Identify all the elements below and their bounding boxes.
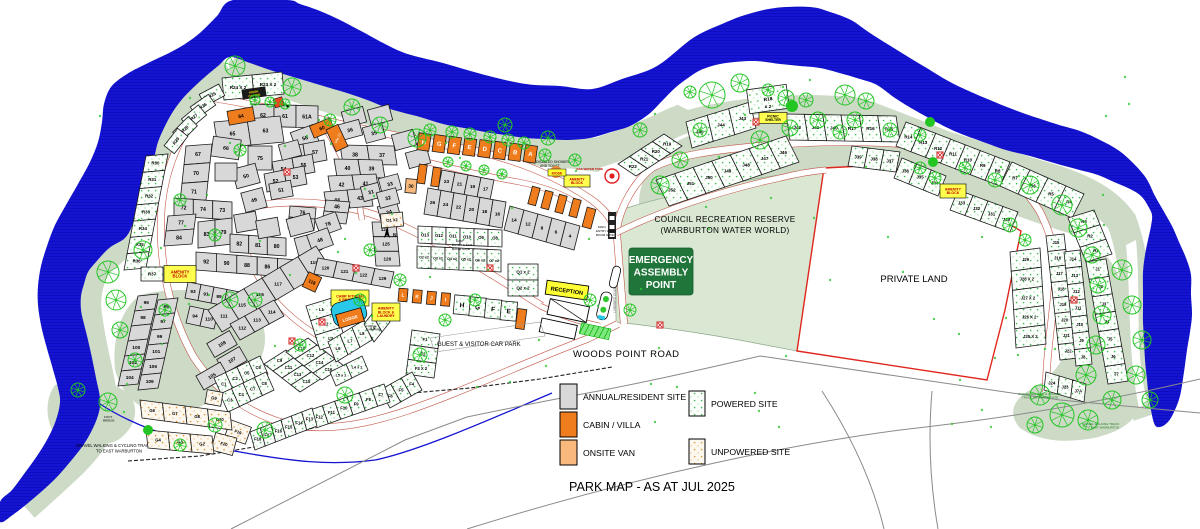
svg-text:F13: F13: [306, 417, 314, 422]
svg-text:120: 120: [322, 265, 330, 270]
svg-text:C3: C3: [227, 398, 233, 403]
svg-text:R23 X 2: R23 X 2: [260, 82, 277, 87]
svg-text:C14: C14: [316, 360, 324, 365]
svg-text:113: 113: [253, 318, 261, 324]
svg-text:19: 19: [470, 184, 476, 190]
svg-text:J1: J1: [1095, 267, 1100, 272]
svg-text:L4 x 2: L4 x 2: [352, 365, 363, 369]
svg-text:53: 53: [293, 175, 299, 181]
svg-text:129: 129: [379, 276, 387, 281]
svg-text:O10: O10: [463, 234, 472, 239]
svg-text:23: 23: [444, 179, 450, 185]
svg-text:R32: R32: [145, 193, 154, 198]
svg-text:122: 122: [360, 272, 368, 277]
svg-text:UNPOWERED SITE: UNPOWERED SITE: [711, 447, 790, 457]
svg-text:J26 X 2: J26 X 2: [1022, 315, 1037, 320]
svg-text:BOOM GATE: BOOM GATE: [596, 233, 614, 237]
svg-text:F16: F16: [275, 429, 283, 434]
svg-text:14: 14: [511, 218, 517, 224]
svg-text:92: 92: [203, 260, 209, 266]
svg-text:F4: F4: [409, 382, 415, 387]
svg-text:J35: J35: [916, 175, 924, 180]
svg-text:ASSEMBLY: ASSEMBLY: [634, 268, 689, 279]
svg-text:Q1 x 2: Q1 x 2: [516, 270, 530, 275]
svg-text:C12: C12: [307, 353, 315, 358]
svg-text:111: 111: [220, 313, 228, 319]
svg-text:R36: R36: [133, 258, 142, 263]
svg-text:71: 71: [191, 190, 197, 196]
svg-text:J37: J37: [886, 159, 894, 164]
svg-text:20: 20: [469, 207, 475, 213]
svg-text:80: 80: [274, 244, 280, 250]
svg-text:C8: C8: [262, 381, 268, 386]
svg-text:89: 89: [216, 294, 222, 300]
svg-text:G6: G6: [149, 408, 155, 413]
svg-text:TO EAST WARBURTON: TO EAST WARBURTON: [1086, 426, 1119, 430]
svg-text:R14: R14: [904, 134, 913, 139]
svg-text:L: L: [401, 293, 405, 299]
svg-text:6: 6: [555, 230, 558, 236]
svg-text:22: 22: [456, 205, 462, 211]
svg-text:O13: O13: [421, 232, 430, 237]
svg-text:12: 12: [525, 222, 531, 228]
svg-text:J47: J47: [761, 156, 769, 161]
svg-text:74: 74: [200, 207, 206, 213]
svg-text:R2: R2: [1087, 234, 1093, 239]
svg-text:N: N: [393, 233, 397, 239]
svg-text:J52: J52: [668, 188, 676, 193]
svg-text:TRACK ENTRANCE GATE: TRACK ENTRANCE GATE: [1022, 396, 1058, 400]
svg-text:77: 77: [178, 220, 184, 226]
svg-text:C15: C15: [303, 379, 311, 384]
svg-text:J48: J48: [742, 162, 750, 167]
svg-text:J14: J14: [1069, 257, 1077, 262]
svg-text:Q2 x 2: Q2 x 2: [516, 286, 530, 291]
svg-text:R16: R16: [866, 126, 875, 131]
svg-text:BRIDGE: BRIDGE: [103, 419, 115, 423]
svg-text:J19: J19: [1059, 302, 1067, 307]
svg-text:J25 X 2: J25 X 2: [1023, 334, 1038, 339]
svg-text:70: 70: [193, 171, 199, 177]
svg-text:J15: J15: [1052, 240, 1060, 245]
svg-text:WOODS POINT ROAD: WOODS POINT ROAD: [573, 349, 680, 360]
svg-text:R5: R5: [1048, 192, 1054, 197]
svg-text:R18: R18: [763, 96, 773, 103]
svg-text:40: 40: [345, 166, 351, 172]
svg-text:LAUNDRY: LAUNDRY: [377, 314, 395, 318]
svg-text:63: 63: [263, 128, 269, 134]
svg-text:L5 x 2: L5 x 2: [336, 373, 347, 377]
svg-text:100: 100: [132, 345, 140, 351]
svg-text:C7: C7: [250, 387, 256, 392]
svg-text:C11: C11: [285, 365, 293, 370]
svg-text:J20: J20: [1061, 318, 1069, 323]
svg-text:KIOSK: KIOSK: [552, 171, 563, 175]
svg-text:CAR PARK: CAR PARK: [366, 328, 381, 332]
svg-text:O5 x2: O5 x2: [461, 258, 471, 262]
svg-text:J6: J6: [1111, 354, 1116, 359]
svg-text:C6: C6: [256, 365, 262, 370]
svg-text:8: 8: [541, 226, 544, 232]
svg-text:J33: J33: [958, 200, 966, 205]
svg-text:J24: J24: [1048, 381, 1056, 386]
svg-text:L6: L6: [336, 346, 342, 351]
svg-text:GRAVEL WALKING & CYCLING TRACK: GRAVEL WALKING & CYCLING TRACK: [76, 443, 152, 448]
svg-text:J16: J16: [1054, 256, 1062, 261]
svg-text:O7 x2: O7 x2: [489, 259, 499, 263]
svg-text:O6 x2: O6 x2: [475, 258, 485, 262]
svg-text:121: 121: [341, 269, 349, 274]
svg-text:R31: R31: [148, 177, 157, 182]
svg-text:J9: J9: [1079, 338, 1084, 343]
svg-text:J17: J17: [1056, 271, 1064, 276]
svg-text:C9: C9: [277, 358, 283, 363]
svg-text:46: 46: [334, 204, 340, 210]
svg-text:37: 37: [379, 153, 385, 159]
svg-text:J49: J49: [724, 169, 732, 174]
svg-text:96: 96: [144, 300, 150, 306]
svg-text:F15: F15: [285, 425, 293, 430]
svg-text:43: 43: [357, 196, 363, 202]
svg-text:39: 39: [369, 167, 375, 173]
svg-text:R11: R11: [949, 152, 957, 157]
svg-text:110: 110: [205, 317, 213, 323]
svg-text:J32: J32: [973, 206, 981, 211]
svg-text:67: 67: [195, 152, 201, 158]
svg-text:16: 16: [495, 212, 501, 218]
svg-text:J28 X 2: J28 X 2: [1020, 276, 1035, 281]
svg-text:GUEST & VISITOR CAR PARK: GUEST & VISITOR CAR PARK: [437, 342, 521, 348]
svg-text:PRIVATE LAND: PRIVATE LAND: [880, 274, 947, 285]
svg-text:COUNCIL RECREATION RESERVE: COUNCIL RECREATION RESERVE: [655, 215, 796, 224]
svg-text:H: H: [459, 302, 465, 309]
svg-text:C13: C13: [294, 372, 302, 377]
svg-text:J23: J23: [1062, 385, 1070, 390]
svg-text:21: 21: [457, 181, 463, 187]
svg-text:BLOCK: BLOCK: [173, 274, 188, 279]
svg-text:POWERED SITE: POWERED SITE: [711, 399, 778, 409]
svg-text:CABIN / VILLA: CABIN / VILLA: [583, 420, 641, 430]
svg-text:26: 26: [430, 200, 436, 206]
svg-text:x 2: x 2: [765, 104, 772, 110]
svg-text:G10: G10: [216, 417, 225, 422]
svg-text:126: 126: [383, 256, 391, 261]
svg-text:65: 65: [230, 131, 236, 137]
svg-text:J43: J43: [738, 116, 746, 121]
svg-text:SHELTER: SHELTER: [765, 118, 781, 122]
svg-text:J51: J51: [687, 181, 695, 186]
svg-text:O11: O11: [449, 234, 457, 239]
svg-text:J18: J18: [1058, 287, 1066, 292]
svg-text:J22: J22: [1065, 349, 1073, 354]
svg-text:J39: J39: [854, 155, 862, 160]
svg-text:F3 X 2: F3 X 2: [415, 366, 428, 371]
svg-text:51: 51: [278, 187, 285, 194]
svg-text:R34: R34: [139, 226, 148, 231]
svg-text:61: 61: [282, 114, 288, 120]
svg-text:J29: J29: [1022, 257, 1030, 262]
svg-text:117: 117: [274, 281, 282, 287]
svg-text:C5: C5: [244, 371, 250, 376]
svg-text:R30: R30: [151, 161, 160, 166]
svg-text:G4: G4: [155, 438, 161, 443]
svg-text:J7: J7: [1114, 371, 1119, 376]
svg-text:R9: R9: [980, 163, 986, 168]
svg-text:G7: G7: [172, 411, 178, 416]
svg-text:125: 125: [382, 242, 390, 247]
svg-text:(WARBURTON WATER WORLD): (WARBURTON WATER WORLD): [660, 226, 789, 235]
svg-text:EMERGENCY: EMERGENCY: [629, 255, 694, 266]
svg-text:TO EAST WARBURTON: TO EAST WARBURTON: [96, 449, 142, 454]
svg-text:24: 24: [443, 202, 449, 208]
svg-text:J38: J38: [870, 157, 878, 162]
svg-text:L7: L7: [348, 339, 354, 344]
svg-text:98: 98: [140, 315, 146, 321]
svg-text:F9: F9: [354, 401, 360, 406]
svg-text:J12: J12: [1073, 289, 1081, 294]
svg-text:J8: J8: [1081, 354, 1086, 359]
svg-text:4: 4: [569, 234, 572, 240]
svg-text:F7: F7: [378, 393, 384, 398]
svg-text:104: 104: [126, 375, 134, 381]
svg-text:J7A: J7A: [1074, 389, 1082, 394]
svg-text:BLOCK: BLOCK: [571, 181, 584, 185]
svg-text:J36: J36: [902, 169, 910, 174]
svg-text:112: 112: [238, 326, 246, 332]
svg-text:ANNUAL/RESIDENT SITE: ANNUAL/RESIDENT SITE: [583, 392, 686, 402]
svg-text:EAS WATER TANK: EAS WATER TANK: [576, 167, 603, 171]
svg-text:O2 x2: O2 x2: [419, 256, 429, 260]
svg-text:17: 17: [483, 186, 489, 192]
svg-text:J5: J5: [1108, 336, 1113, 341]
svg-text:101: 101: [152, 349, 160, 355]
svg-text:42: 42: [339, 182, 345, 188]
svg-text:O9: O9: [478, 235, 484, 240]
svg-text:30: 30: [408, 183, 414, 188]
svg-text:J21: J21: [1063, 333, 1071, 338]
svg-text:106: 106: [149, 364, 157, 370]
svg-text:F: F: [491, 306, 496, 313]
svg-text:PARK MAP - AS AT JUL 2025: PARK MAP - AS AT JUL 2025: [569, 480, 735, 494]
svg-text:J50: J50: [705, 175, 713, 180]
svg-text:O3 x2: O3 x2: [433, 256, 443, 260]
svg-text:J11: J11: [1075, 306, 1082, 311]
svg-text:73: 73: [219, 208, 225, 214]
svg-text:G2: G2: [199, 442, 205, 447]
svg-text:J46: J46: [779, 150, 787, 155]
svg-text:94: 94: [192, 314, 198, 320]
svg-text:C1: C1: [221, 382, 227, 387]
svg-text:86: 86: [265, 264, 271, 270]
svg-text:57: 57: [312, 150, 318, 156]
svg-text:F8: F8: [366, 397, 372, 402]
svg-text:ONSITE VAN: ONSITE VAN: [583, 448, 635, 458]
svg-text:O12: O12: [435, 233, 444, 238]
svg-text:J31: J31: [988, 211, 996, 216]
svg-text:F11: F11: [328, 410, 336, 415]
svg-text:C4: C4: [239, 392, 245, 397]
svg-text:F10: F10: [340, 406, 348, 411]
svg-text:J13: J13: [1071, 273, 1079, 278]
svg-text:E: E: [467, 145, 472, 152]
svg-text:J44: J44: [717, 123, 725, 128]
svg-text:BLOCK: BLOCK: [947, 191, 960, 195]
svg-text:F14: F14: [295, 421, 303, 426]
svg-text:61A: 61A: [302, 115, 312, 121]
svg-text:R20: R20: [652, 149, 661, 154]
svg-text:POINT: POINT: [646, 280, 677, 291]
svg-text:93: 93: [190, 289, 196, 295]
svg-text:18: 18: [482, 209, 488, 215]
svg-text:99: 99: [157, 334, 163, 340]
svg-text:C2: C2: [233, 376, 239, 381]
svg-text:L1: L1: [319, 307, 325, 312]
svg-text:R22: R22: [629, 164, 638, 169]
svg-text:L8: L8: [360, 331, 366, 336]
svg-text:90: 90: [224, 261, 230, 267]
svg-text:84: 84: [176, 235, 182, 241]
svg-text:75: 75: [257, 156, 263, 162]
svg-text:72: 72: [181, 206, 187, 212]
svg-text:114: 114: [268, 310, 276, 316]
svg-text:J27 X 2: J27 X 2: [1021, 296, 1036, 301]
svg-text:66: 66: [223, 145, 230, 152]
svg-text:J10: J10: [1076, 322, 1084, 327]
svg-text:F1: F1: [423, 337, 429, 342]
svg-text:BOOM GATE: BOOM GATE: [452, 247, 470, 251]
svg-text:R21: R21: [640, 156, 649, 161]
svg-text:R37: R37: [148, 272, 157, 277]
svg-text:O4 x2: O4 x2: [447, 257, 457, 261]
svg-text:O8: O8: [492, 236, 498, 241]
svg-text:R19: R19: [663, 141, 672, 146]
svg-text:115: 115: [238, 303, 246, 309]
svg-text:O1 x2: O1 x2: [386, 217, 398, 223]
svg-text:38: 38: [352, 153, 358, 159]
svg-text:G8: G8: [194, 414, 200, 419]
svg-text:81: 81: [255, 243, 261, 249]
svg-text:F5: F5: [399, 388, 405, 393]
svg-text:82: 82: [236, 242, 242, 248]
svg-text:109: 109: [146, 379, 154, 385]
svg-text:R7: R7: [1012, 176, 1018, 181]
svg-text:88: 88: [244, 263, 250, 269]
svg-text:F12: F12: [316, 414, 324, 419]
svg-text:R33: R33: [142, 210, 151, 215]
svg-text:R12: R12: [934, 146, 943, 151]
